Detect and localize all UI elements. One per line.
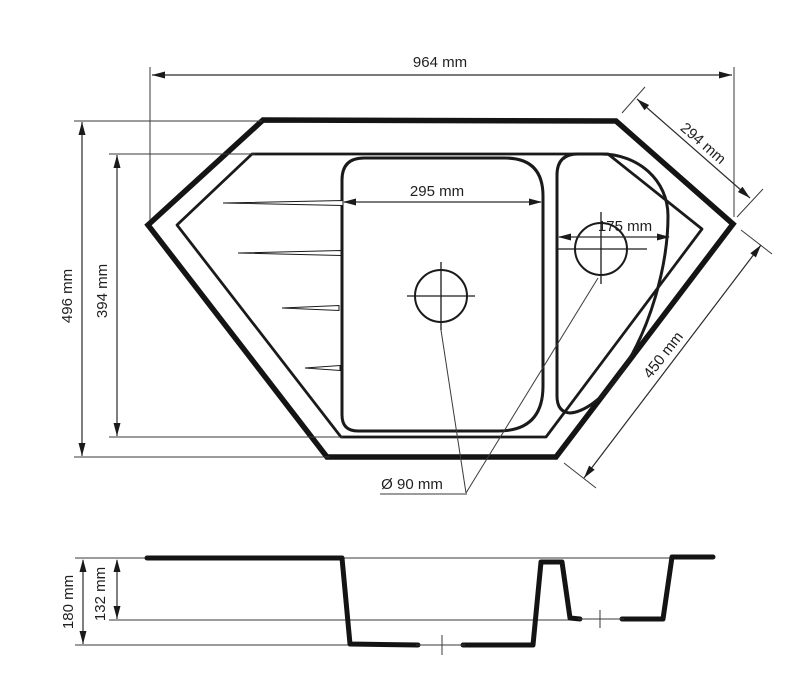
dim-main-bowl-depth: 180 mm xyxy=(60,559,87,644)
groove xyxy=(223,201,343,206)
dim-label-drain: Ø 90 mm xyxy=(381,476,443,493)
section-profile xyxy=(147,557,713,645)
sink-technical-drawing: 964 mm 294 mm 496 mm 394 mm xyxy=(0,0,800,683)
dim-small-bowl-depth: 132 mm xyxy=(92,559,121,621)
dim-small-bowl-width: 175 mm xyxy=(558,218,670,241)
section-main-drain-mark xyxy=(416,635,465,655)
dim-label-175: 175 mm xyxy=(598,218,652,235)
dim-label-496: 496 mm xyxy=(59,269,76,323)
dim-label-294: 294 mm xyxy=(677,119,729,167)
dim-inner-depth: 394 mm xyxy=(94,154,343,437)
dim-diagonal-edge: 450 mm xyxy=(564,230,772,488)
dim-main-bowl-width: 295 mm xyxy=(343,183,542,206)
dim-label-180: 180 mm xyxy=(60,575,77,629)
top-view: 964 mm 294 mm 496 mm 394 mm xyxy=(59,54,772,494)
main-drain xyxy=(407,262,475,330)
dim-label-394: 394 mm xyxy=(94,264,111,318)
groove xyxy=(282,306,339,311)
drawing-canvas: 964 mm 294 mm 496 mm 394 mm xyxy=(0,0,800,683)
section-view: 180 mm 132 mm xyxy=(60,557,713,655)
dim-corner-edge: 294 mm xyxy=(622,87,763,217)
section-small-drain-mark xyxy=(578,610,624,628)
dim-label-132: 132 mm xyxy=(92,567,109,621)
groove xyxy=(238,251,341,256)
dim-label-295: 295 mm xyxy=(410,183,464,200)
dim-label-964: 964 mm xyxy=(413,54,467,71)
groove xyxy=(305,366,340,371)
drain-diameter-callout: Ø 90 mm xyxy=(380,278,598,494)
